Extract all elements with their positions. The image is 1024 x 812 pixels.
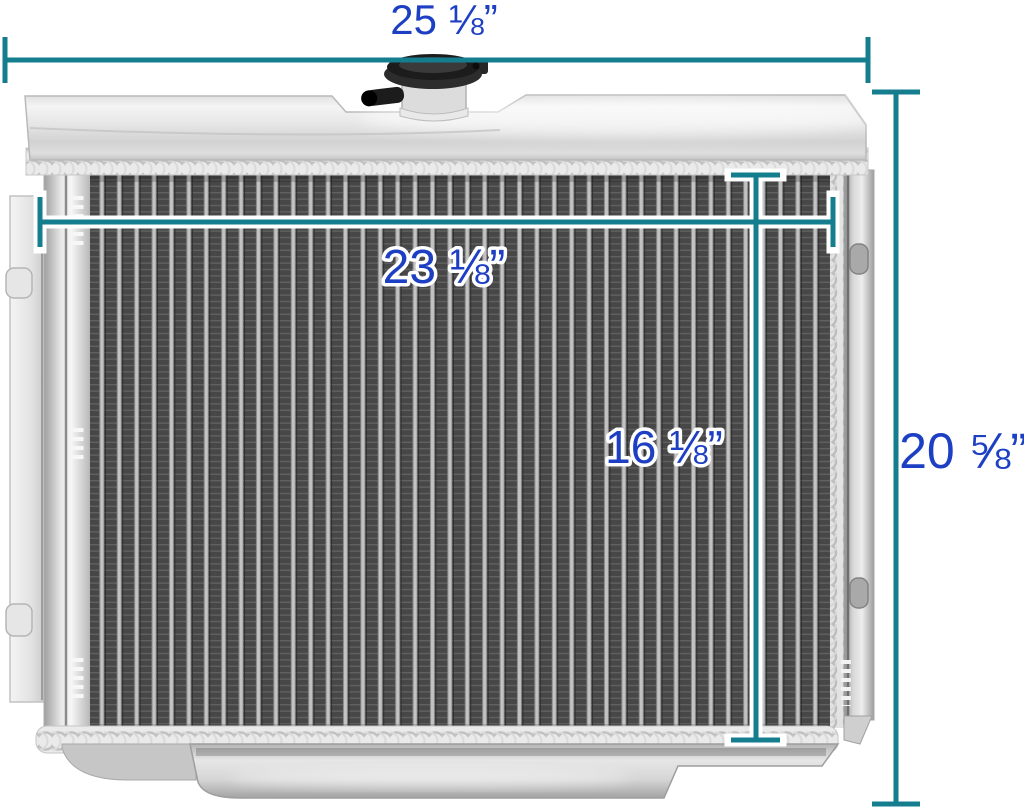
radiator-dimension-diagram: 25 ⅛” 20 ⅝” 23 ⅛” 16 ⅛” (0, 0, 1024, 812)
right-side-channel (828, 170, 874, 744)
right-channel-slot-lower (850, 578, 868, 608)
cap-rivet (473, 63, 480, 70)
bottom-tank-shadow (196, 748, 826, 756)
left-flange-tab-upper (6, 268, 32, 298)
left-flange-tab-lower (6, 604, 32, 636)
left-side-channel (44, 170, 94, 736)
core-height-dimension-label: 16 ⅛” (605, 421, 723, 473)
right-channel-slot-upper (850, 244, 868, 274)
left-mounting-flange (6, 196, 46, 702)
left-channel-body (44, 170, 94, 736)
overall-width-dimension-label: 25 ⅛” (390, 0, 497, 43)
product-image: 25 ⅛” 20 ⅝” 23 ⅛” 16 ⅛” (0, 0, 1024, 812)
core-width-dimension-label: 23 ⅛” (383, 241, 506, 294)
overall-height-dimension-label: 20 ⅝” (899, 423, 1024, 479)
bottom-tank-highlight (230, 769, 630, 787)
